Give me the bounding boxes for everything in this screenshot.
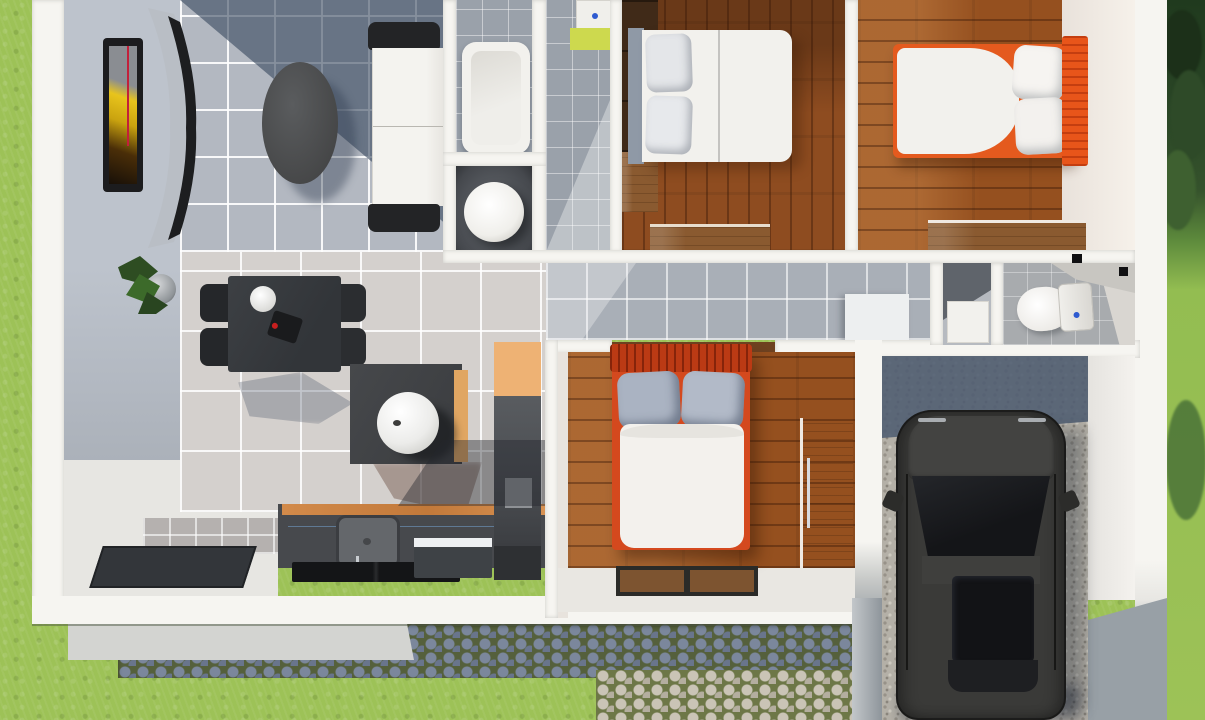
wall-art-frame xyxy=(103,38,143,192)
wall-bath-left xyxy=(443,0,456,263)
potted-plant xyxy=(118,248,184,312)
tv-console xyxy=(138,8,200,248)
car-side-crease xyxy=(906,474,908,670)
wall-art-picture xyxy=(109,46,137,184)
wall-bedroom1-left xyxy=(845,0,858,252)
light-patch xyxy=(546,100,610,252)
dishwasher-white-top xyxy=(414,538,492,547)
wall-garage-right-inner xyxy=(1088,356,1135,600)
vanity-lime-cabinet xyxy=(570,28,612,50)
concrete-step-slab xyxy=(68,624,414,660)
wall-bedroom2-left xyxy=(610,0,622,252)
bed-headboard-red-orange xyxy=(610,344,752,372)
table-centerpiece xyxy=(267,310,304,344)
bed-pillow xyxy=(645,95,693,155)
dishwasher xyxy=(414,538,492,578)
car-side-crease xyxy=(1054,474,1056,670)
floor-plan-render xyxy=(0,0,1205,720)
bathtub-basin xyxy=(471,51,521,145)
sphere-lamp xyxy=(377,392,439,454)
car-roof-rail xyxy=(918,418,946,422)
tree-canopy xyxy=(1162,10,1202,80)
bush xyxy=(1166,400,1205,520)
car-sunroof xyxy=(952,576,1034,662)
hall-appliance-box xyxy=(845,294,909,340)
sink-drain xyxy=(363,538,371,545)
wc-floor xyxy=(1003,263,1135,345)
tree-canopy xyxy=(1170,70,1205,160)
wall-bath-mid xyxy=(532,0,546,263)
shower-tray xyxy=(947,301,989,343)
car-hood xyxy=(908,416,1054,480)
garage-left-wall-exterior xyxy=(852,598,882,720)
light-cobblestone-path xyxy=(596,670,856,720)
bed-pillow-gray xyxy=(617,370,682,429)
wall-bedroom3-left xyxy=(545,340,558,618)
wall-art-red-line xyxy=(127,46,129,146)
dining-set xyxy=(200,272,370,376)
dining-table xyxy=(228,276,341,372)
door-mat-brown xyxy=(686,566,758,596)
sofa-cushion-seam xyxy=(373,126,444,127)
entry-door-mat xyxy=(89,546,257,588)
car-rear-window xyxy=(948,660,1038,692)
vanity-basin xyxy=(576,0,614,30)
suv-car xyxy=(896,410,1066,720)
bedroom3-wardrobe xyxy=(800,418,853,568)
wall-shower-left xyxy=(930,263,943,345)
bed-pillow xyxy=(1011,44,1067,101)
sofa-armrest-top xyxy=(368,22,440,50)
wall-bath-horizontal xyxy=(443,152,546,166)
wall-bedroom3-right xyxy=(855,340,882,620)
kitchen-sink xyxy=(336,515,400,569)
sofa xyxy=(366,22,443,232)
door-mat-brown xyxy=(616,566,688,596)
car-windshield xyxy=(912,476,1050,560)
bed-pillow xyxy=(1014,97,1069,156)
shower-room-floor xyxy=(943,263,991,345)
vanity-blue-dot xyxy=(592,13,598,19)
door-mark xyxy=(1119,267,1128,276)
bed-duvet xyxy=(897,48,1019,154)
bathtub xyxy=(462,42,530,154)
duvet-edge-wave xyxy=(620,424,744,438)
upper-cabinet-tan xyxy=(494,342,541,396)
exterior-wall-left xyxy=(32,0,66,608)
fridge-base-dark xyxy=(494,546,541,580)
bedroom1-bed xyxy=(893,36,1090,166)
toilet-tank xyxy=(1057,282,1094,332)
light-patch xyxy=(546,263,636,340)
lamp-switch-dot xyxy=(393,420,401,426)
bed-pillow xyxy=(645,33,693,93)
centerpiece-red-dot xyxy=(271,322,279,330)
bed-headboard-orange xyxy=(1062,36,1088,166)
bedroom3-bed xyxy=(610,344,752,554)
bed-pillow-gray xyxy=(681,370,746,429)
car-roof-rail xyxy=(1018,418,1046,422)
wall-wc-left xyxy=(991,263,1003,345)
bed-duvet xyxy=(620,424,744,548)
dinner-plate xyxy=(250,286,276,312)
oval-coffee-table xyxy=(262,62,338,184)
bedroom2-bed xyxy=(628,26,794,166)
cylinder-toilet xyxy=(464,182,524,242)
wardrobe-handle xyxy=(807,458,810,528)
hallway-floor xyxy=(546,263,993,340)
sofa-cushions xyxy=(372,48,444,206)
duvet-fold xyxy=(718,30,720,162)
wall-band-middle xyxy=(443,250,1135,263)
toilet-flush-blue-dot xyxy=(1073,312,1079,318)
sofa-armrest-bottom xyxy=(368,204,440,232)
